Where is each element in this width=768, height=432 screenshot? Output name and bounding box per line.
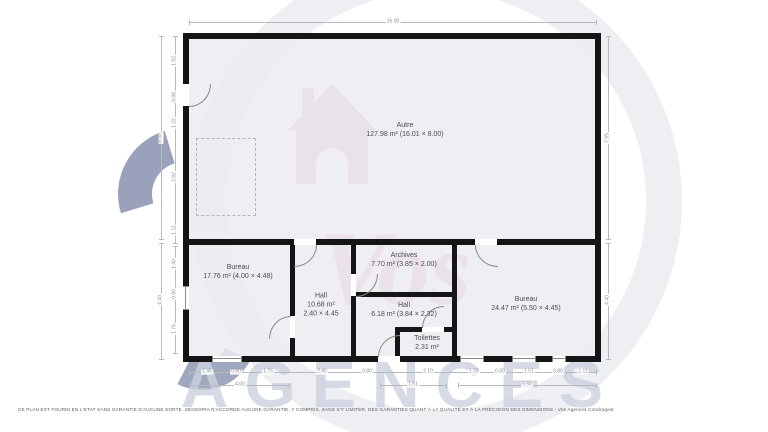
room-name: Bureau xyxy=(491,295,560,304)
dimension-label: 5.50 xyxy=(521,383,533,388)
window xyxy=(460,356,484,362)
dimension-label: 1.28 xyxy=(468,370,480,375)
wall-hall-bureau-right xyxy=(452,239,457,362)
dimension-label: 1.51 xyxy=(523,370,535,375)
wall-divider-horizontal xyxy=(183,239,601,245)
room-label-bureau-right: Bureau 24.47 m² (5.50 × 4.45) xyxy=(491,295,560,313)
dimension-line xyxy=(189,372,597,373)
window xyxy=(552,356,566,362)
dimension-label: 2.82 xyxy=(173,171,178,183)
dimension-label: 7.95 xyxy=(606,132,611,144)
room-name: Hall xyxy=(303,292,338,301)
dimension-label: 1.45 xyxy=(201,370,213,375)
floorplan-canvas: Vos AGENCES Autre 127.98 m² (16.01 × 8.0… xyxy=(0,0,768,432)
dimension-label: 1.75 xyxy=(262,370,274,375)
room-area: 7.70 m² (3.85 × 2.00) xyxy=(371,260,437,269)
room-name: Hall xyxy=(371,301,437,310)
dimension-label: 1.11 xyxy=(173,224,178,235)
dimension-label: 0.80 xyxy=(361,370,373,375)
room-size: 2.40 × 4.45 xyxy=(303,310,338,319)
room-area: 6.18 m² (3.84 × 2.32) xyxy=(371,310,437,319)
dashed-area xyxy=(196,138,256,216)
room-name: Toilettes xyxy=(414,334,440,343)
window xyxy=(512,356,536,362)
dimension-label: 1.61 xyxy=(407,383,419,388)
room-area: 17.76 m² (4.00 × 4.48) xyxy=(203,272,272,281)
room-label-autre: Autre 127.98 m² (16.01 × 8.00) xyxy=(366,121,443,139)
wall-exterior-top xyxy=(183,33,601,39)
room-area: 127.98 m² (16.01 × 8.00) xyxy=(366,130,443,139)
wall-exterior-left xyxy=(183,33,189,362)
room-label-hall-center: Hall 6.18 m² (3.84 × 2.32) xyxy=(371,301,437,319)
dimension-line xyxy=(175,36,176,244)
dimension-label: 1.40 xyxy=(173,258,178,270)
dimension-label: 0.80 xyxy=(230,370,242,375)
room-area: 10.68 m² xyxy=(303,301,338,310)
dimension-label: 0.80 xyxy=(552,370,564,375)
dimension-label: 2.40 xyxy=(316,370,328,375)
room-label-toilettes: Toilettes 2.31 m² xyxy=(414,334,440,352)
room-name: Bureau xyxy=(203,263,272,272)
dimension-label: 16.00 xyxy=(386,20,401,25)
room-area: 2.31 m² xyxy=(414,343,440,352)
room-label-bureau-left: Bureau 17.76 m² (4.00 × 4.48) xyxy=(203,263,272,281)
room-name: Archives xyxy=(371,251,437,260)
dimension-label: 2.10 xyxy=(422,370,434,375)
dimension-label: 1.11 xyxy=(577,370,588,375)
dimension-label: 4.40 xyxy=(159,294,164,306)
dimension-label: 0.90 xyxy=(173,288,178,300)
window xyxy=(212,356,242,362)
window xyxy=(183,286,189,310)
disclaimer-text: CE PLAN EST FOURNI EN L'ETAT SANS GARANT… xyxy=(18,407,614,412)
room-name: Autre xyxy=(366,121,443,130)
dimension-label: 1.22 xyxy=(173,117,178,129)
wall-hall-archives xyxy=(351,239,356,362)
dimension-label: 0.80 xyxy=(494,370,506,375)
dimension-label: 4.00 xyxy=(234,383,246,388)
dimension-label: 0.88 xyxy=(173,91,178,103)
room-label-hall-left: Hall 10.68 m² 2.40 × 4.45 xyxy=(303,292,338,319)
room-label-archives: Archives 7.70 m² (3.85 × 2.00) xyxy=(371,251,437,269)
dimension-label: 1.92 xyxy=(173,55,178,67)
dimension-label: 1.76 xyxy=(173,323,178,335)
dimension-label: 8.00 xyxy=(159,132,164,144)
room-area: 24.47 m² (5.50 × 4.45) xyxy=(491,304,560,313)
dimension-label: 4.40 xyxy=(606,294,611,306)
wall-exterior-right xyxy=(595,33,601,362)
